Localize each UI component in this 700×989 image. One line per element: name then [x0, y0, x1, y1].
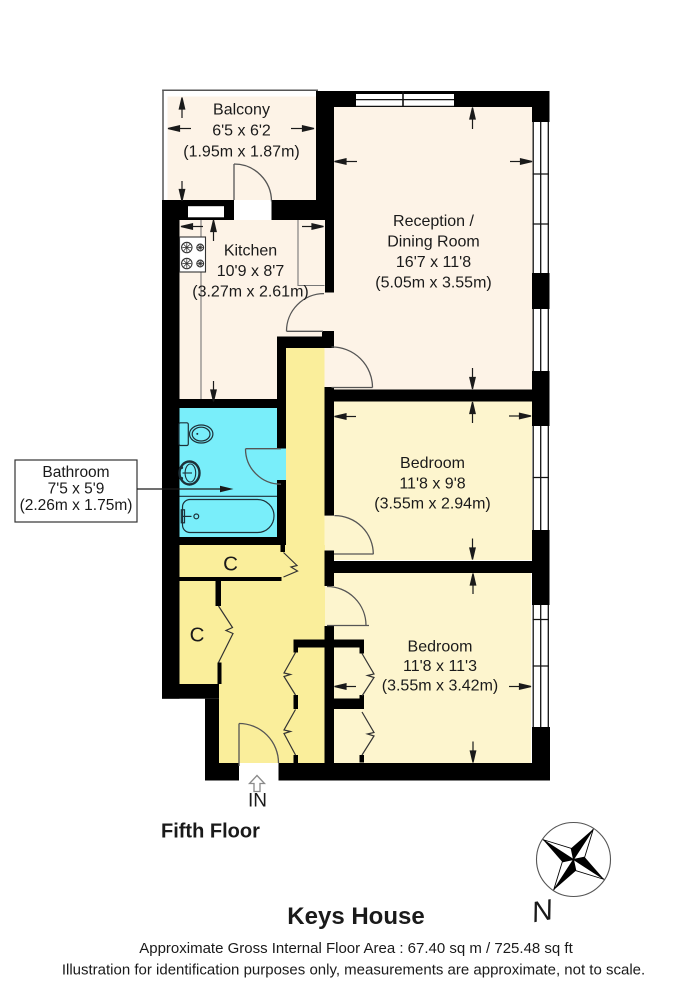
svg-text:Keys House: Keys House [287, 903, 424, 930]
svg-text:7'5 x 5'9: 7'5 x 5'9 [48, 481, 105, 498]
svg-text:(3.55m x 3.42m): (3.55m x 3.42m) [382, 678, 498, 695]
svg-text:16'7 x 11'8: 16'7 x 11'8 [396, 254, 471, 271]
svg-text:11'8 x 11'3: 11'8 x 11'3 [403, 658, 477, 675]
svg-text:C: C [190, 624, 205, 647]
svg-text:Bathroom: Bathroom [42, 464, 109, 481]
svg-text:Fifth Floor: Fifth Floor [161, 821, 260, 843]
svg-text:(3.55m x 2.94m): (3.55m x 2.94m) [374, 496, 490, 513]
svg-text:Illustration for identificatio: Illustration for identification purposes… [62, 962, 645, 979]
svg-text:(2.26m x 1.75m): (2.26m x 1.75m) [20, 497, 133, 514]
svg-text:Kitchen: Kitchen [224, 243, 277, 260]
svg-text:C: C [223, 553, 238, 576]
svg-text:(5.05m x 3.55m): (5.05m x 3.55m) [375, 275, 491, 292]
svg-text:Bedroom: Bedroom [408, 639, 473, 656]
svg-text:Bedroom: Bedroom [400, 455, 465, 472]
svg-text:Balcony: Balcony [213, 102, 270, 119]
svg-text:(3.27m x 2.61m): (3.27m x 2.61m) [192, 284, 308, 301]
svg-text:IN: IN [248, 791, 267, 812]
svg-text:11'8 x 9'8: 11'8 x 9'8 [399, 476, 465, 493]
svg-text:6'5 x 6'2: 6'5 x 6'2 [212, 123, 271, 140]
svg-text:Dining Room: Dining Room [387, 234, 479, 251]
svg-text:Reception /: Reception / [393, 213, 474, 230]
svg-text:(1.95m x 1.87m): (1.95m x 1.87m) [183, 144, 299, 161]
svg-text:Approximate Gross Internal Flo: Approximate Gross Internal Floor Area : … [139, 940, 573, 957]
svg-text:10'9 x 8'7: 10'9 x 8'7 [217, 263, 285, 280]
